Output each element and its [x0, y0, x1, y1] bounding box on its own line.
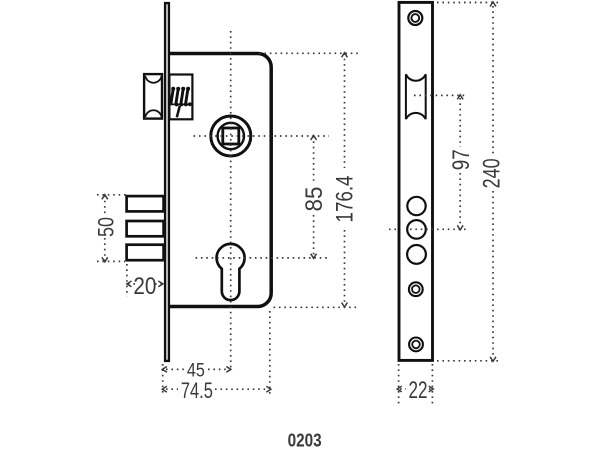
svg-text:0203: 0203 — [288, 430, 322, 450]
svg-text:240: 240 — [478, 158, 505, 188]
svg-text:176.4: 176.4 — [332, 176, 359, 223]
svg-text:74.5: 74.5 — [181, 378, 213, 403]
svg-text:22: 22 — [409, 377, 428, 404]
svg-text:97: 97 — [448, 149, 475, 170]
svg-text:20: 20 — [133, 273, 156, 300]
svg-text:50: 50 — [94, 217, 119, 237]
svg-text:85: 85 — [301, 187, 328, 212]
